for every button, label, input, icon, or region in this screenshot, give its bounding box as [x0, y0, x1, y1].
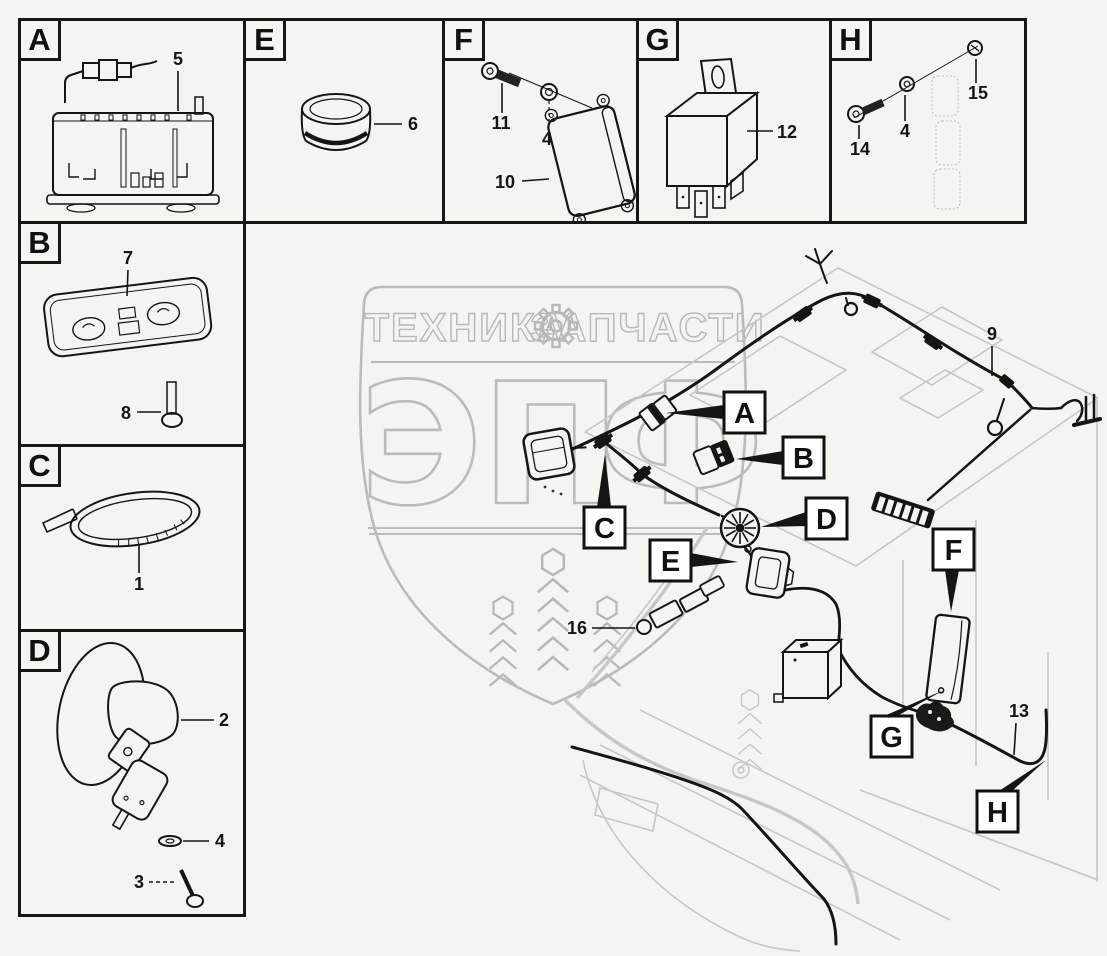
callout-box-e: E: [650, 540, 691, 581]
svg-text:H: H: [987, 797, 1008, 829]
part-number-16: 16: [567, 618, 587, 638]
callout-number: 4: [215, 831, 225, 851]
panel-letter-tag: F: [442, 18, 485, 61]
callout-number: 11: [491, 113, 510, 133]
svg-text:B: B: [793, 443, 814, 475]
module-part: [926, 614, 970, 704]
panel-letter-tag: E: [243, 18, 286, 61]
panel-d-art: 2 4 3: [21, 632, 243, 914]
grommet-chain-part: [637, 576, 725, 634]
svg-text:G: G: [880, 722, 903, 754]
control-box-part: [774, 640, 841, 702]
svg-text:C: C: [594, 513, 615, 545]
callout-box-a: A: [724, 392, 765, 433]
detail-panel-h: H 14 4 15: [829, 18, 1027, 224]
panel-letter-tag: A: [18, 18, 61, 61]
callout-number: 12: [777, 122, 797, 142]
cable-duct-part: [870, 491, 935, 529]
panel-letter-tag: H: [829, 18, 872, 61]
panel-letter-tag: B: [18, 221, 61, 264]
detail-panel-b: B 7 8: [18, 221, 246, 447]
callout-number: 4: [900, 121, 910, 141]
detail-panel-g: G 12: [636, 18, 832, 224]
detail-panel-d: D: [18, 629, 246, 917]
detail-panel-e: E 6: [243, 18, 445, 224]
callout-number: 6: [408, 114, 418, 134]
bracket-lamp-part: [746, 547, 797, 599]
callout-number: 1: [134, 574, 144, 594]
callout-number: 8: [121, 403, 131, 423]
panel-letter: E: [254, 24, 275, 55]
callout-box-c: C: [584, 507, 625, 548]
callout-number: 3: [134, 872, 144, 892]
panel-letter: B: [28, 227, 50, 258]
callout-number: 7: [123, 248, 133, 268]
callout-number: 14: [850, 139, 870, 159]
callout-number: 5: [173, 49, 183, 69]
detail-panel-f: F 11: [442, 18, 639, 224]
callout-number: 4: [542, 129, 552, 149]
panel-letter: H: [839, 24, 861, 55]
callout-number: 2: [219, 710, 229, 730]
panel-letter: G: [645, 24, 669, 55]
callout-number: 10: [495, 172, 515, 192]
connector-g-part: [916, 702, 954, 732]
svg-text:D: D: [816, 504, 837, 536]
watermark-wheat: [490, 549, 621, 686]
svg-text:F: F: [945, 535, 963, 567]
panel-letter-tag: G: [636, 18, 679, 61]
callout-box-d: D: [806, 498, 847, 539]
callout-box-h: H: [977, 791, 1018, 832]
callout-number: 15: [968, 83, 988, 103]
panel-letter: D: [28, 635, 50, 666]
panel-letter-tag: D: [18, 629, 61, 672]
callout-box-f: F: [933, 529, 974, 570]
main-diagram: ТЕХНИКА ЗАПЧАСТИ Э П Ф: [246, 224, 1107, 956]
callout-box-b: B: [783, 437, 824, 478]
callout-box-g: G: [871, 716, 912, 757]
svg-text:A: A: [734, 398, 755, 430]
panel-letter: F: [454, 24, 473, 55]
part-number-13: 13: [1009, 701, 1029, 721]
panel-letter: A: [28, 24, 50, 55]
parts-diagram-page: ТЕХНИКА ЗАПЧАСТИ Э П Ф: [0, 0, 1107, 956]
panel-letter: C: [28, 450, 50, 481]
svg-text:E: E: [661, 546, 680, 578]
part-number-9: 9: [987, 324, 997, 344]
detail-panel-c: C 1: [18, 444, 246, 632]
watermark-monogram-e: Э: [359, 347, 482, 543]
panel-letter-tag: C: [18, 444, 61, 487]
detail-panel-a: A: [18, 18, 246, 224]
